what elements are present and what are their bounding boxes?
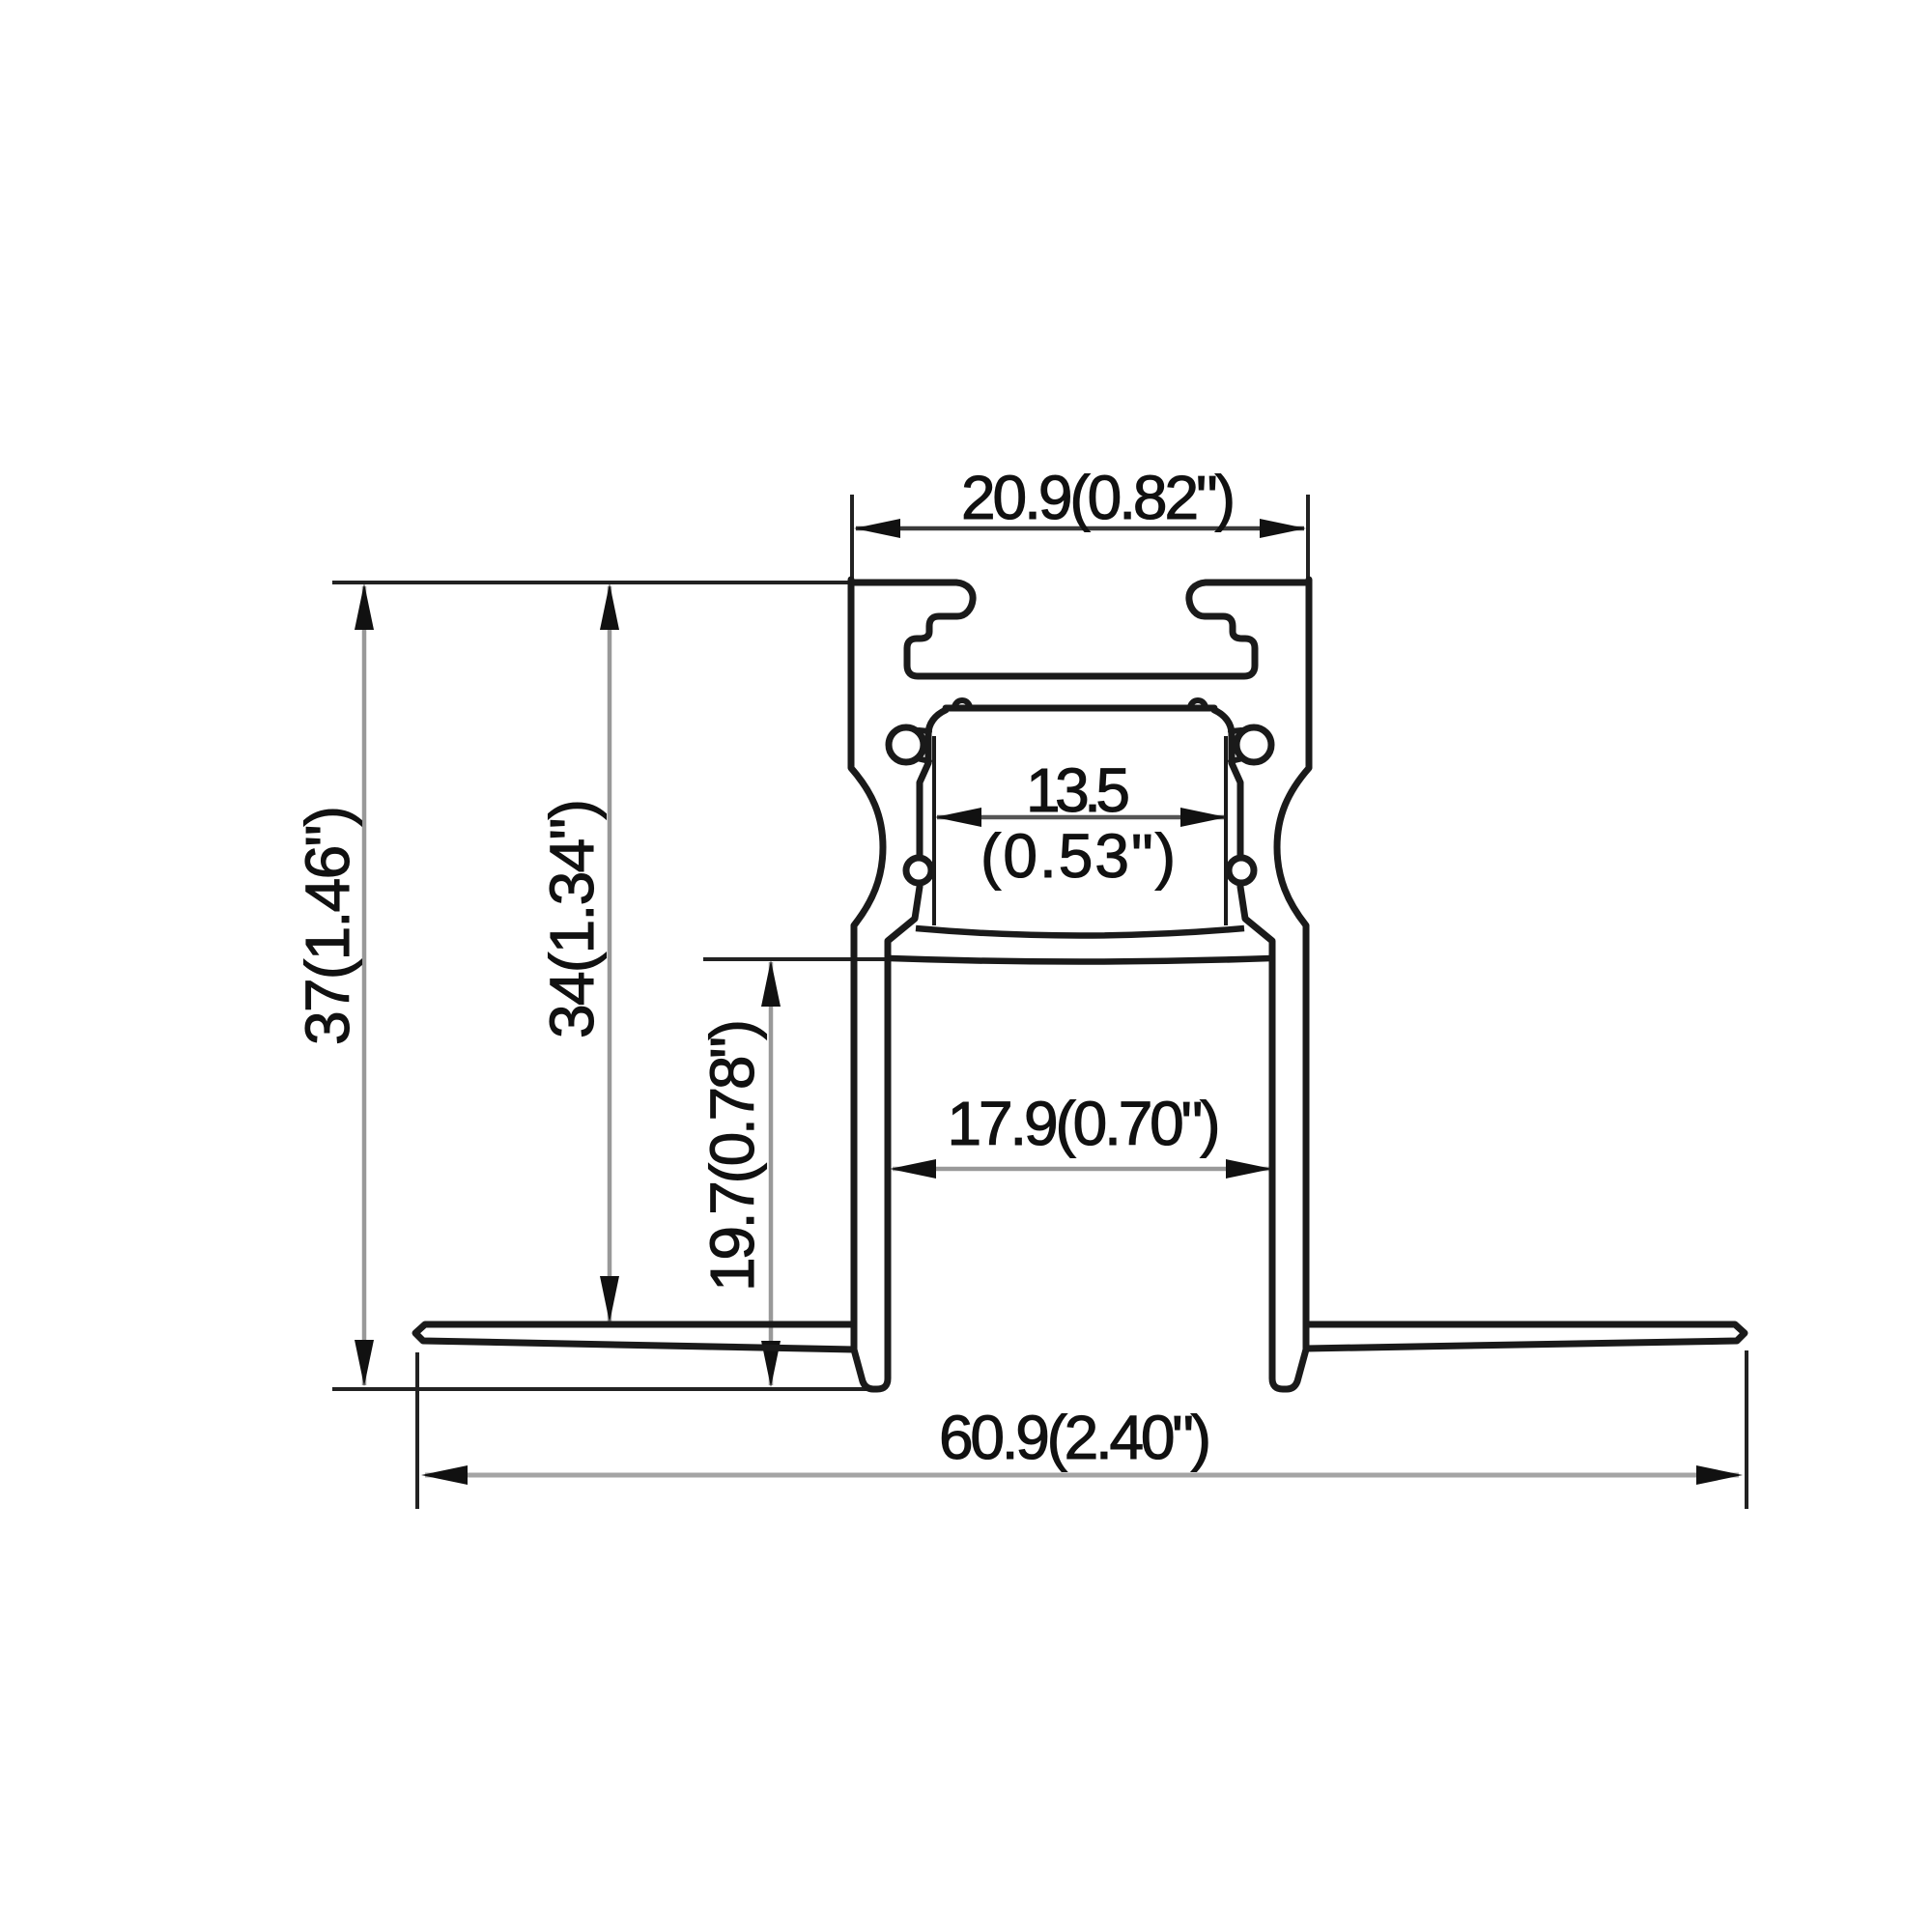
svg-text:17.9(0.70"): 17.9(0.70") (948, 1089, 1221, 1158)
svg-text:34(1.34"): 34(1.34") (537, 799, 607, 1038)
svg-text:20.9(0.82"): 20.9(0.82") (961, 463, 1236, 532)
svg-text:37(1.46"): 37(1.46") (293, 806, 362, 1045)
svg-text:60.9(2.40"): 60.9(2.40") (939, 1403, 1211, 1472)
svg-text:(0.53"): (0.53") (980, 821, 1176, 891)
svg-text:19.7(0.78"): 19.7(0.78") (697, 1019, 767, 1292)
svg-text:13.5: 13.5 (1026, 755, 1130, 825)
